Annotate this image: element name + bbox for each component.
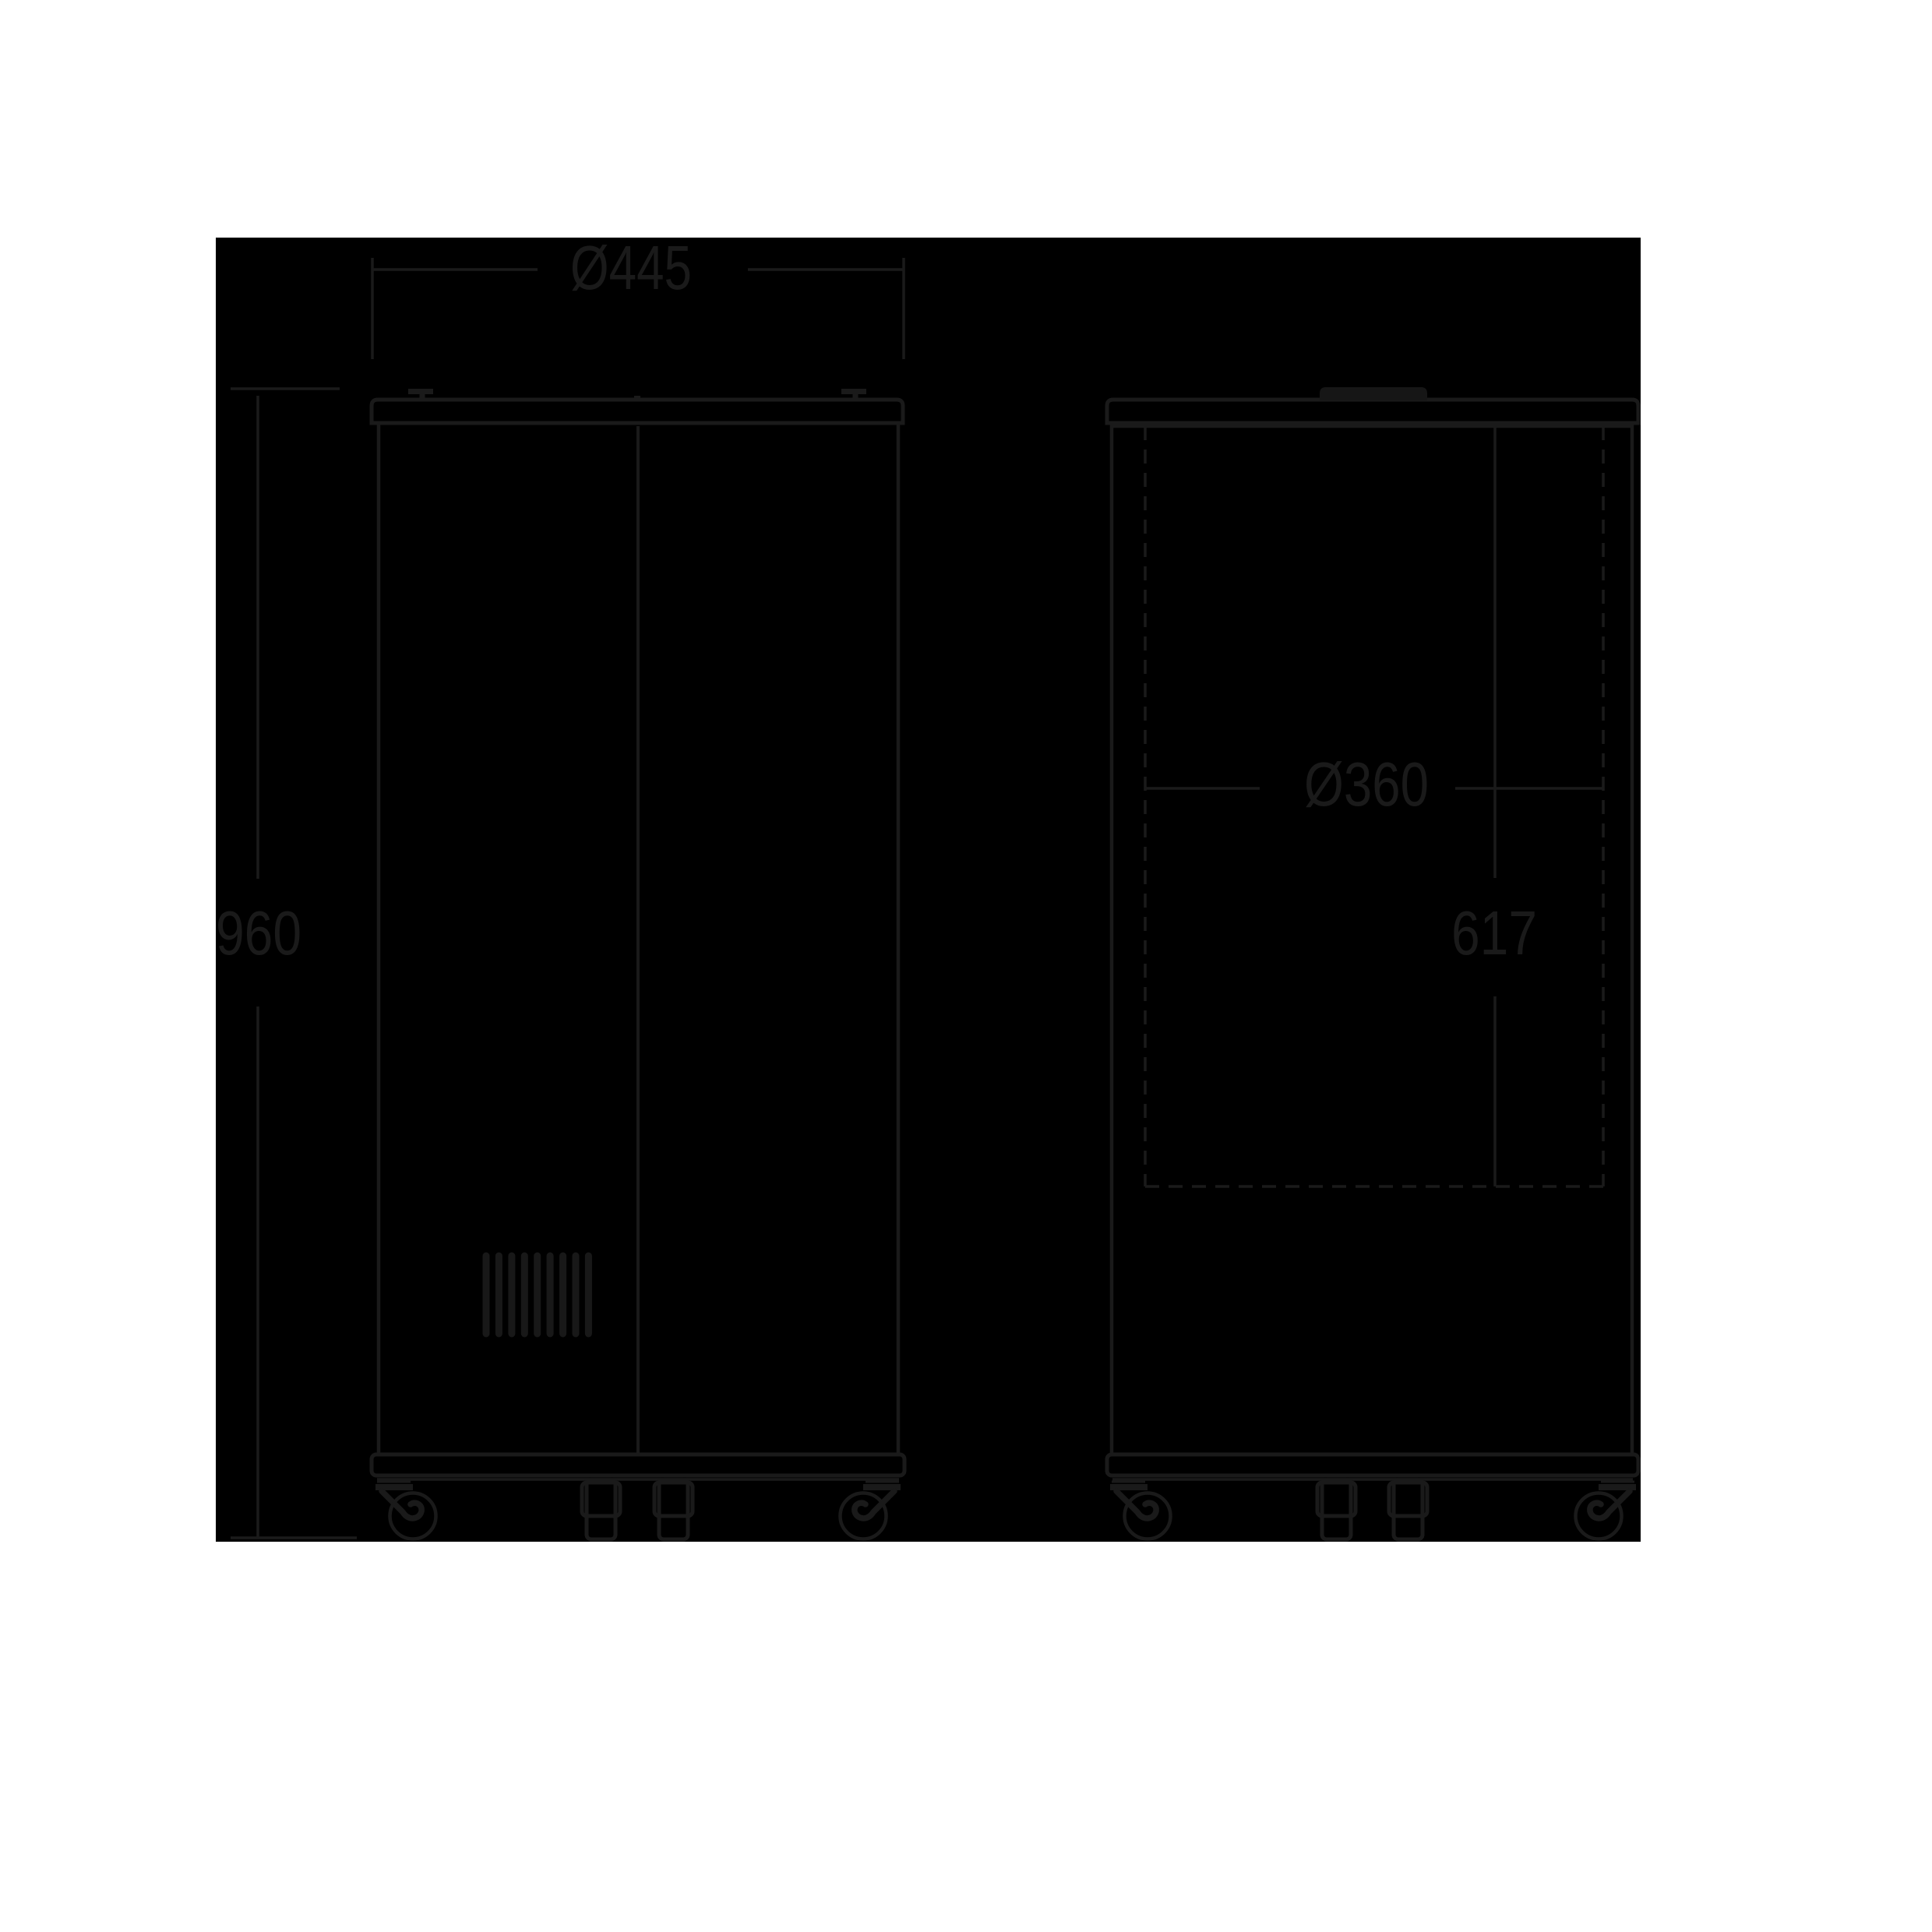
svg-text:617: 617 bbox=[1451, 898, 1537, 968]
svg-text:960: 960 bbox=[216, 898, 301, 968]
svg-text:Ø445: Ø445 bbox=[570, 233, 692, 302]
svg-text:Ø360: Ø360 bbox=[1304, 749, 1429, 819]
